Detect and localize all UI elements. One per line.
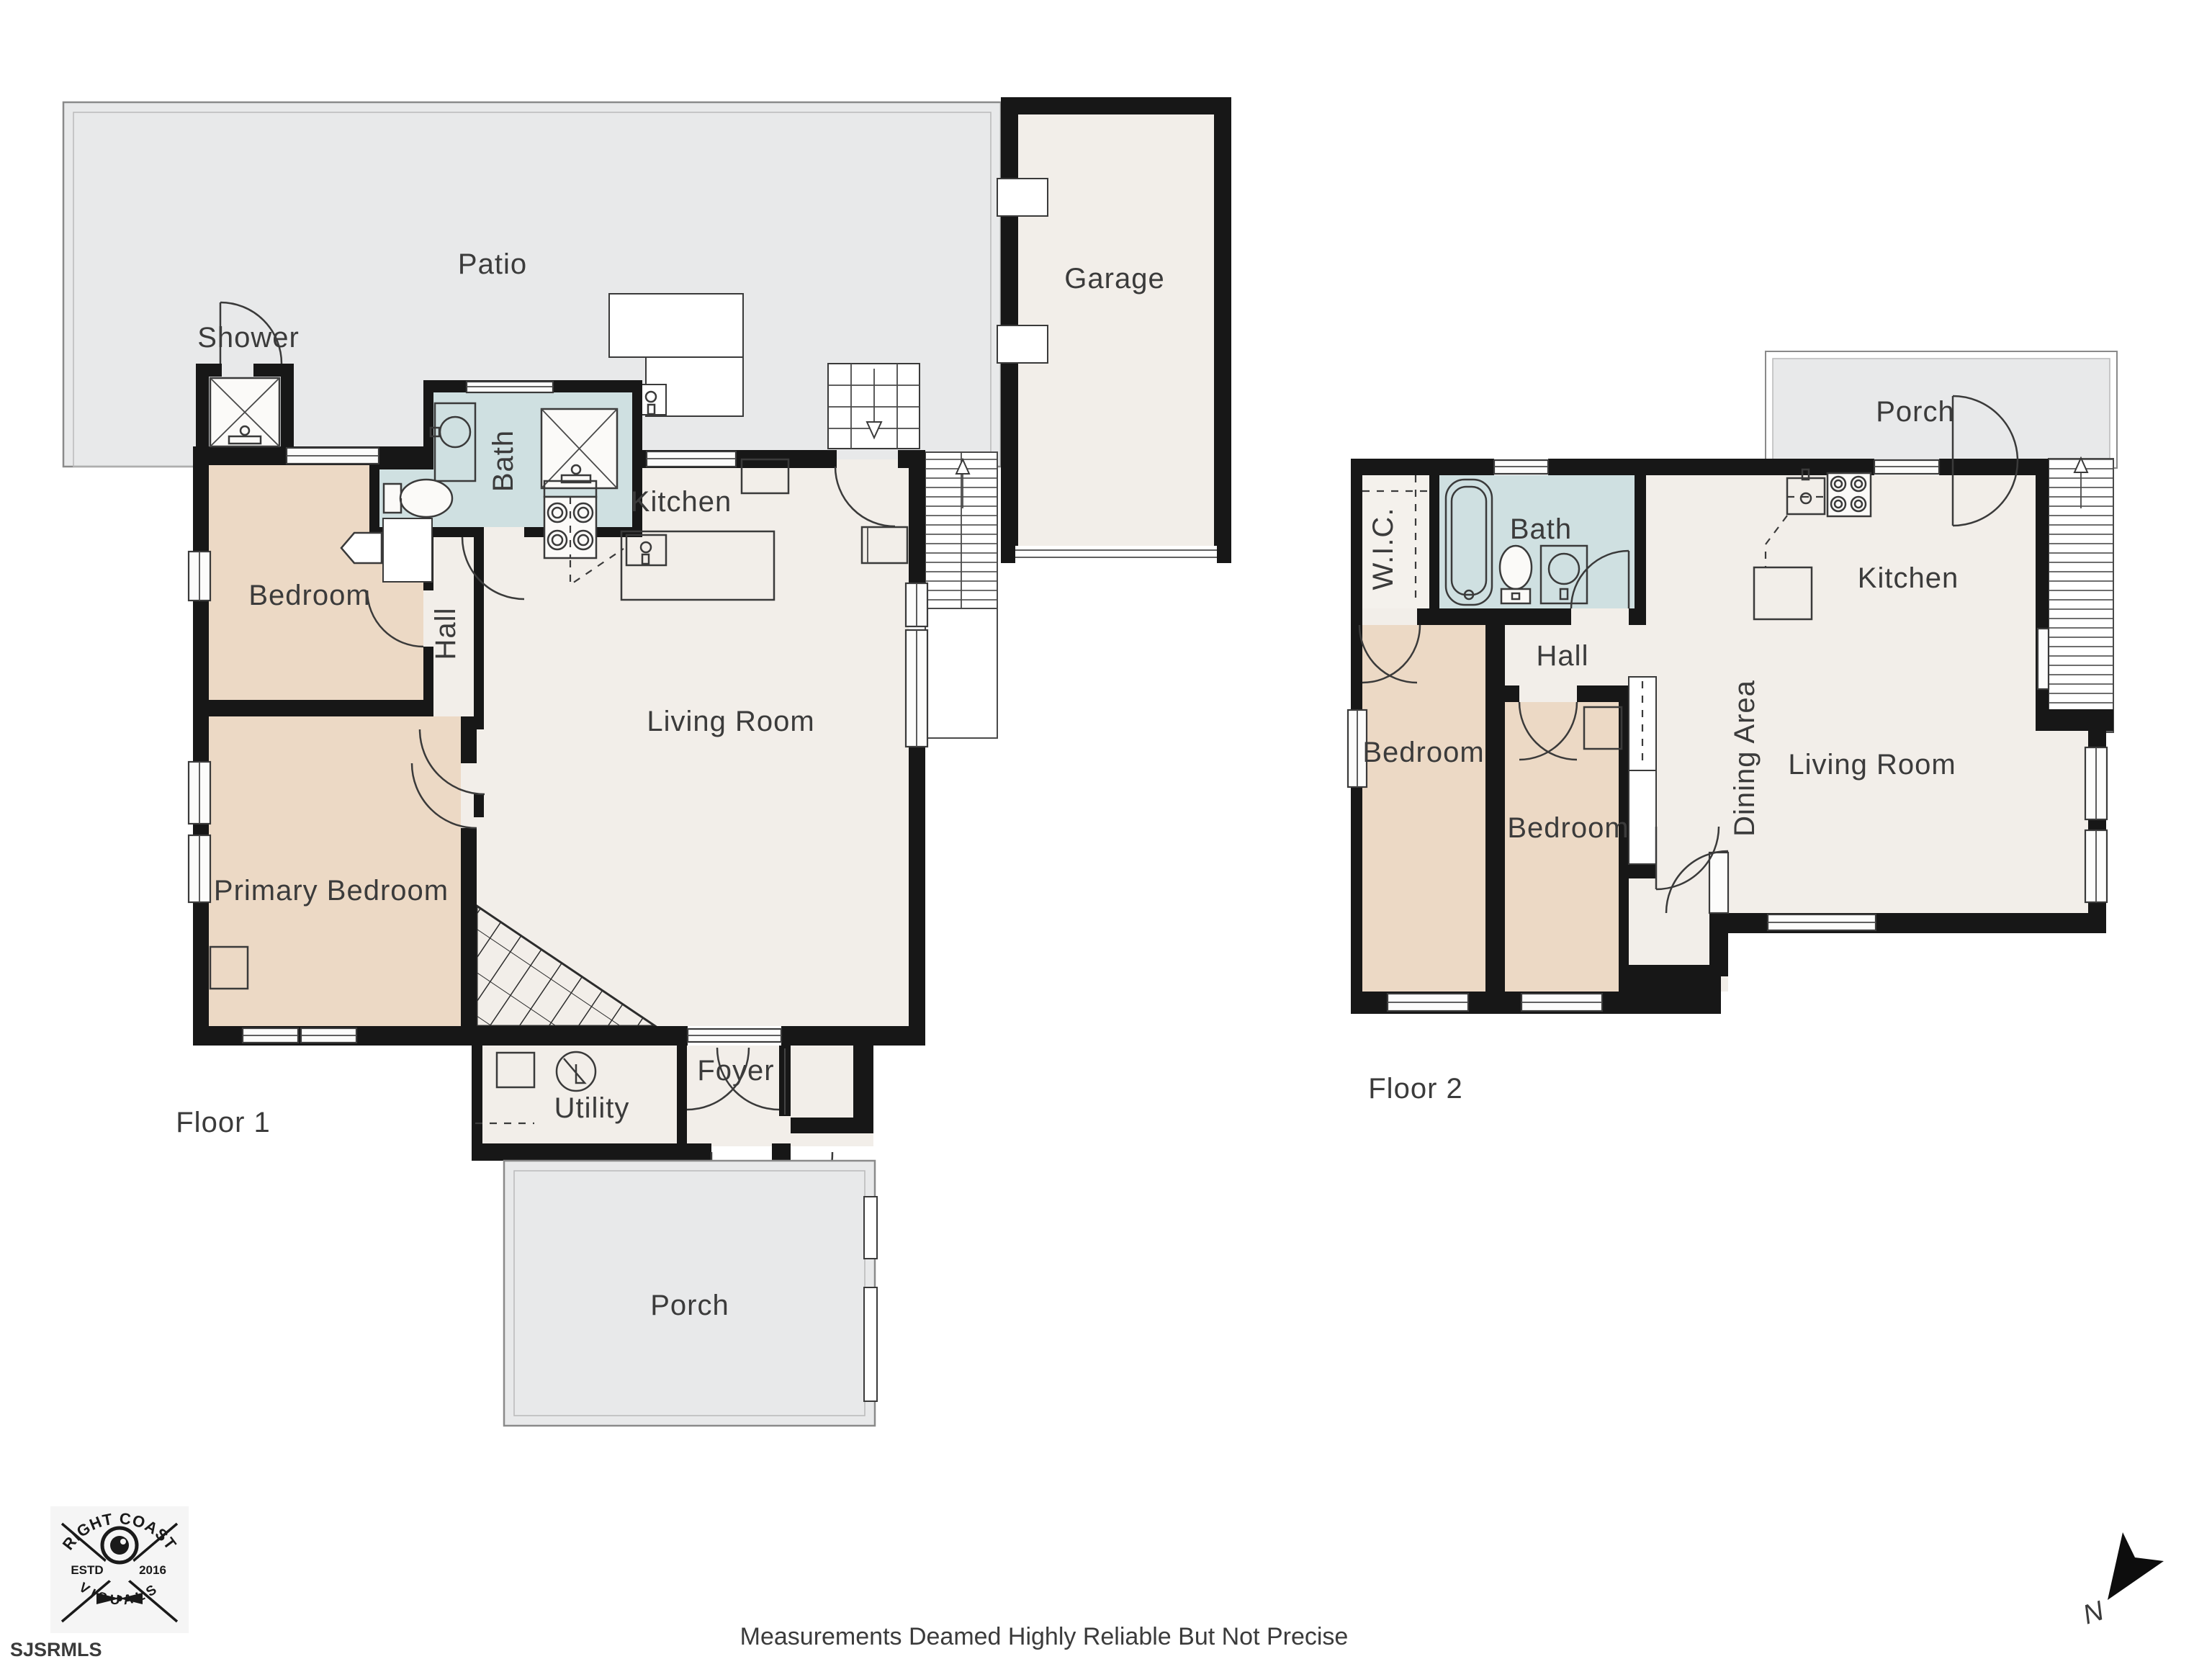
label-kitchen-f1: Kitchen bbox=[631, 486, 732, 518]
label-utility: Utility bbox=[554, 1092, 630, 1124]
floorplan-canvas: Patio Shower Bath Kitchen Bedroom Hall P… bbox=[0, 0, 2212, 1659]
label-floor2: Floor 2 bbox=[1368, 1073, 1463, 1105]
logo-estd: ESTD bbox=[71, 1563, 103, 1577]
label-bedroom-f1: Bedroom bbox=[248, 580, 370, 611]
north-compass: N bbox=[2080, 1532, 2164, 1631]
bedroom-right-floor bbox=[1505, 702, 1619, 992]
bedroom-closet bbox=[383, 518, 432, 582]
label-bath-f1: Bath bbox=[487, 430, 519, 492]
patio-steps bbox=[828, 364, 920, 449]
disclaimer-text: Measurements Deamed Highly Reliable But … bbox=[740, 1623, 1349, 1650]
label-living-room-f2: Living Room bbox=[1788, 749, 1956, 781]
label-kitchen-f2: Kitchen bbox=[1858, 562, 1959, 594]
north-arrow-icon bbox=[2108, 1532, 2164, 1600]
floorplan-page: Patio Shower Bath Kitchen Bedroom Hall P… bbox=[0, 0, 2212, 1659]
mls-watermark: SJSRMLS bbox=[10, 1639, 102, 1659]
patio-counter bbox=[609, 294, 743, 357]
label-floor1: Floor 1 bbox=[176, 1107, 271, 1138]
label-porch-f2: Porch bbox=[1876, 396, 1955, 428]
exterior-stairs-f2 bbox=[2049, 458, 2113, 732]
exterior-stairs-f1 bbox=[925, 452, 997, 738]
garage-shelf bbox=[997, 179, 1048, 216]
label-living-room-f1: Living Room bbox=[647, 706, 814, 737]
label-porch-f1: Porch bbox=[650, 1290, 729, 1321]
label-primary-bedroom: Primary Bedroom bbox=[214, 875, 449, 907]
shutter-icon bbox=[102, 1528, 137, 1563]
label-bath-f2: Bath bbox=[1510, 513, 1572, 545]
label-patio: Patio bbox=[458, 248, 527, 280]
logo-year: 2016 bbox=[139, 1563, 166, 1577]
label-bedroom-left: Bedroom bbox=[1362, 737, 1484, 768]
label-hall-f2: Hall bbox=[1537, 640, 1589, 672]
garage-area bbox=[997, 97, 1231, 563]
floor1-plan: Patio Shower Bath Kitchen Bedroom Hall P… bbox=[63, 97, 1231, 1426]
label-foyer: Foyer bbox=[697, 1055, 774, 1087]
label-hall-f1: Hall bbox=[430, 608, 462, 660]
toilet-f2 bbox=[1500, 546, 1532, 603]
floor2-plan: Porch W.I.C. Bath Kitchen Hall Bedroom B… bbox=[1348, 351, 2117, 1105]
toilet bbox=[384, 480, 452, 517]
label-bedroom-right: Bedroom bbox=[1507, 812, 1629, 844]
primary-bedroom-floor bbox=[209, 716, 461, 1026]
north-label: N bbox=[2080, 1596, 2108, 1631]
label-garage: Garage bbox=[1064, 263, 1164, 295]
garage-shelf-2 bbox=[997, 325, 1048, 363]
label-wic: W.I.C. bbox=[1367, 508, 1399, 590]
label-dining-area: Dining Area bbox=[1729, 680, 1761, 837]
label-shower: Shower bbox=[197, 322, 300, 354]
closet-f2-2 bbox=[1629, 770, 1656, 864]
branding-logo: RIGHT COAST ESTD 2016 VISUALS bbox=[50, 1506, 189, 1633]
